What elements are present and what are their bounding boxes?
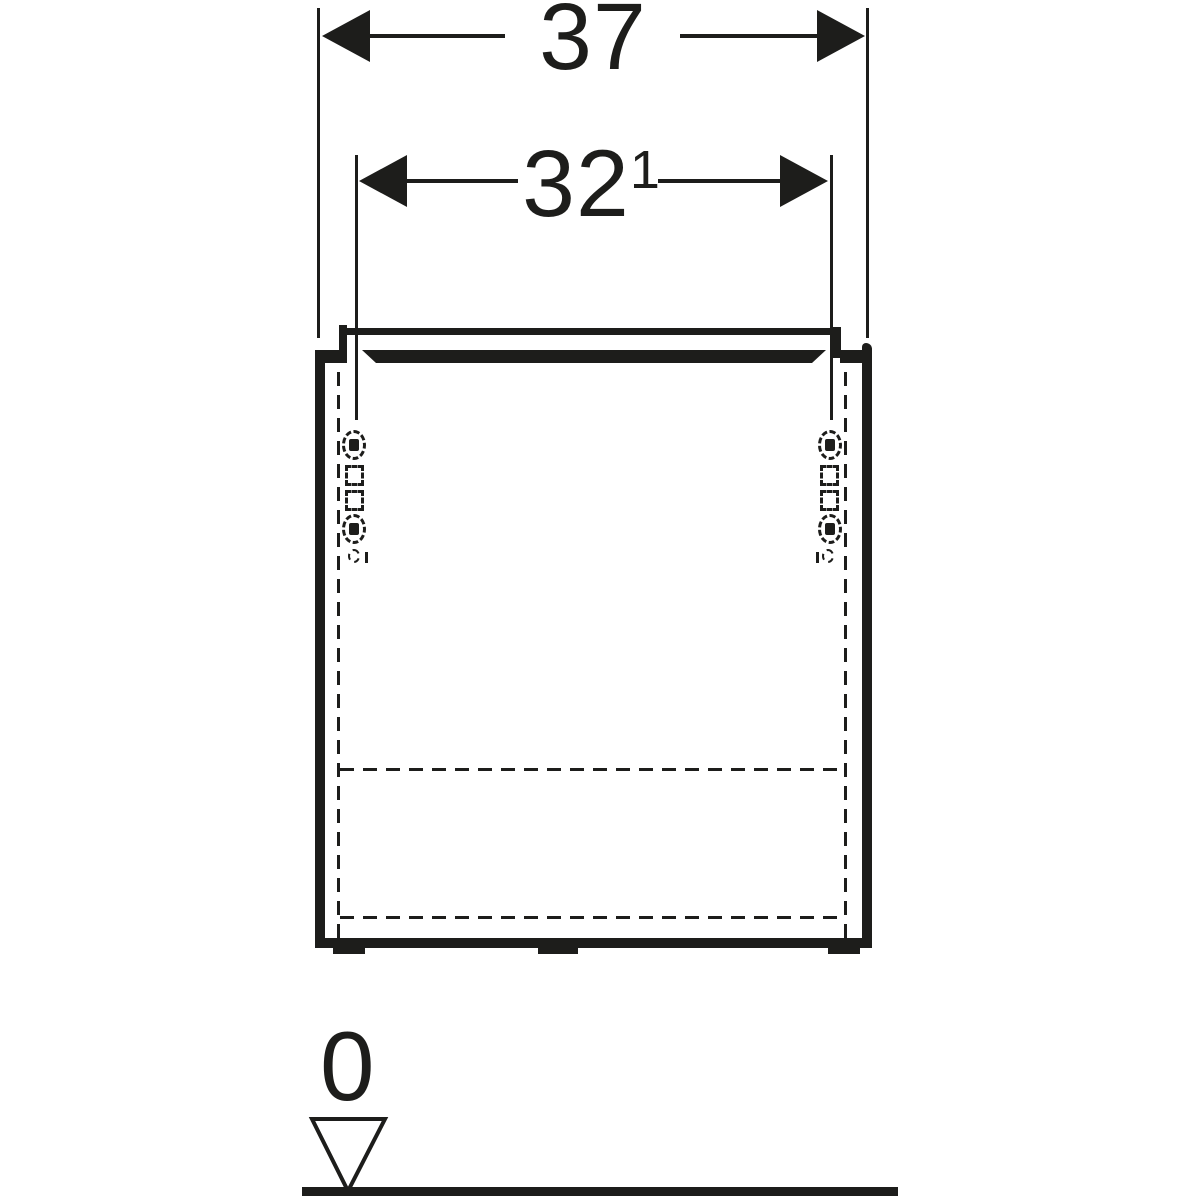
hinge-cup-icon (342, 514, 366, 544)
extension-line-32-right (830, 155, 833, 420)
hinge-pin-icon (822, 549, 834, 563)
hinge-plate-icon (820, 490, 839, 511)
hinge-mark (365, 552, 368, 563)
hinge-plate-icon (820, 465, 839, 486)
cabinet-bottom-panel (315, 938, 872, 948)
dimension-value-37: 37 (539, 0, 647, 75)
floor-line (302, 1187, 898, 1196)
hidden-edge-shelf (340, 768, 844, 771)
datum-level-label: 0 (320, 1026, 375, 1106)
hinge-plate-icon (345, 490, 364, 511)
hidden-edge-inner-left (337, 372, 340, 938)
dimension-line-32-left-segment (407, 179, 518, 183)
dimension-label-fixing-distance: 321 (503, 147, 679, 222)
bottom-tab-right (828, 948, 860, 954)
dimension-line-37-left-segment (370, 34, 505, 38)
datum-value-0: 0 (320, 1011, 375, 1121)
datum-level-triangle-icon (306, 1113, 392, 1195)
hinge-mark (816, 552, 819, 563)
extension-line-32-left (355, 155, 358, 420)
hinge-screw-icon (349, 523, 359, 535)
hidden-edge-inner-right (844, 372, 847, 938)
hinge-cup-icon (818, 514, 842, 544)
dimension-label-overall-width: 37 (505, 0, 681, 75)
extension-line-37-left (317, 8, 320, 338)
hinge-screw-icon (349, 439, 359, 451)
hidden-edge-bottom-inner (340, 916, 844, 919)
dimension-arrowhead-icon (322, 10, 370, 62)
dimension-value-32: 32 (522, 147, 630, 222)
slab-front-edge (362, 350, 826, 363)
dimension-arrowhead-icon (359, 155, 407, 207)
extension-line-37-right (866, 8, 869, 338)
bottom-tab-center (538, 948, 578, 954)
cabinet-right-wall (862, 343, 872, 948)
dimension-superscript-1: 1 (630, 143, 660, 197)
hinge-cup-icon (818, 430, 842, 460)
hinge-plate-icon (345, 465, 364, 486)
hinge-cup-icon (342, 430, 366, 460)
cabinet-left-wall (315, 350, 325, 948)
technical-drawing-canvas: 37 321 0 (0, 0, 1200, 1200)
slab-top-edge (339, 328, 841, 335)
bottom-tab-left (333, 948, 365, 954)
hinge-pin-icon (348, 549, 360, 563)
dimension-arrowhead-icon (817, 10, 865, 62)
dimension-line-37-right-segment (680, 34, 817, 38)
hinge-screw-icon (825, 439, 835, 451)
dimension-arrowhead-icon (780, 155, 828, 207)
hinge-screw-icon (825, 523, 835, 535)
